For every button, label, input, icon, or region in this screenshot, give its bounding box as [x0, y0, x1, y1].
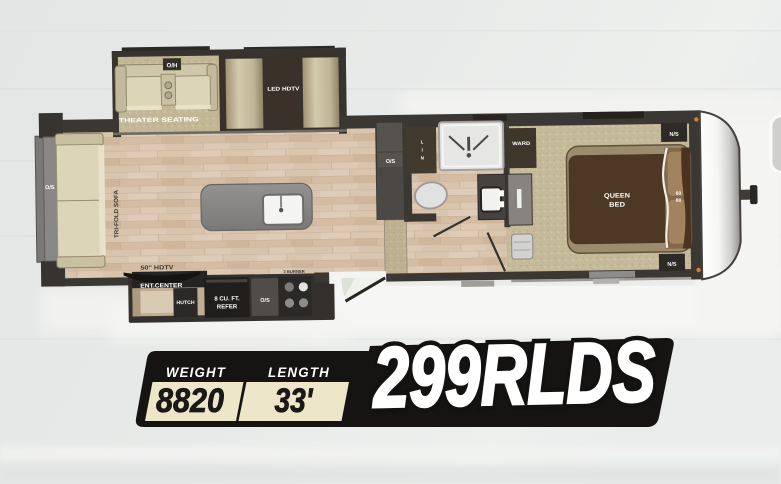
svg-text:8820: 8820	[156, 382, 224, 420]
svg-text:O/S: O/S	[386, 159, 396, 165]
svg-text:N: N	[421, 155, 424, 160]
svg-text:REFER: REFER	[217, 304, 238, 310]
svg-text:WARD: WARD	[512, 141, 531, 147]
svg-text:HUTCH: HUTCH	[176, 300, 194, 306]
svg-text:QUEEN: QUEEN	[604, 192, 630, 199]
svg-text:299RLDS: 299RLDS	[371, 325, 657, 426]
svg-text:LENGTH: LENGTH	[268, 365, 330, 380]
svg-text:8 CU. FT.: 8 CU. FT.	[214, 296, 240, 302]
svg-text:LED HDTV: LED HDTV	[267, 86, 299, 92]
svg-text:WEIGHT: WEIGHT	[166, 365, 227, 380]
svg-text:60: 60	[676, 191, 682, 197]
svg-text:N/S: N/S	[667, 262, 677, 268]
svg-text:50" HDTV: 50" HDTV	[140, 265, 173, 271]
svg-text:THEATER SEATING: THEATER SEATING	[119, 116, 199, 124]
svg-text:N/S: N/S	[669, 132, 679, 138]
svg-text:BED: BED	[609, 202, 625, 209]
svg-text:O/S: O/S	[45, 185, 55, 191]
svg-text:I: I	[422, 148, 423, 153]
svg-text:33': 33'	[275, 382, 315, 420]
svg-text:O/H: O/H	[167, 63, 178, 69]
svg-text:TRI-FOLD SOFA: TRI-FOLD SOFA	[114, 189, 121, 238]
svg-text:80: 80	[676, 198, 682, 204]
svg-text:L: L	[421, 139, 424, 144]
svg-text:O/S: O/S	[260, 298, 270, 304]
svg-text:3 BURNER: 3 BURNER	[283, 269, 304, 274]
